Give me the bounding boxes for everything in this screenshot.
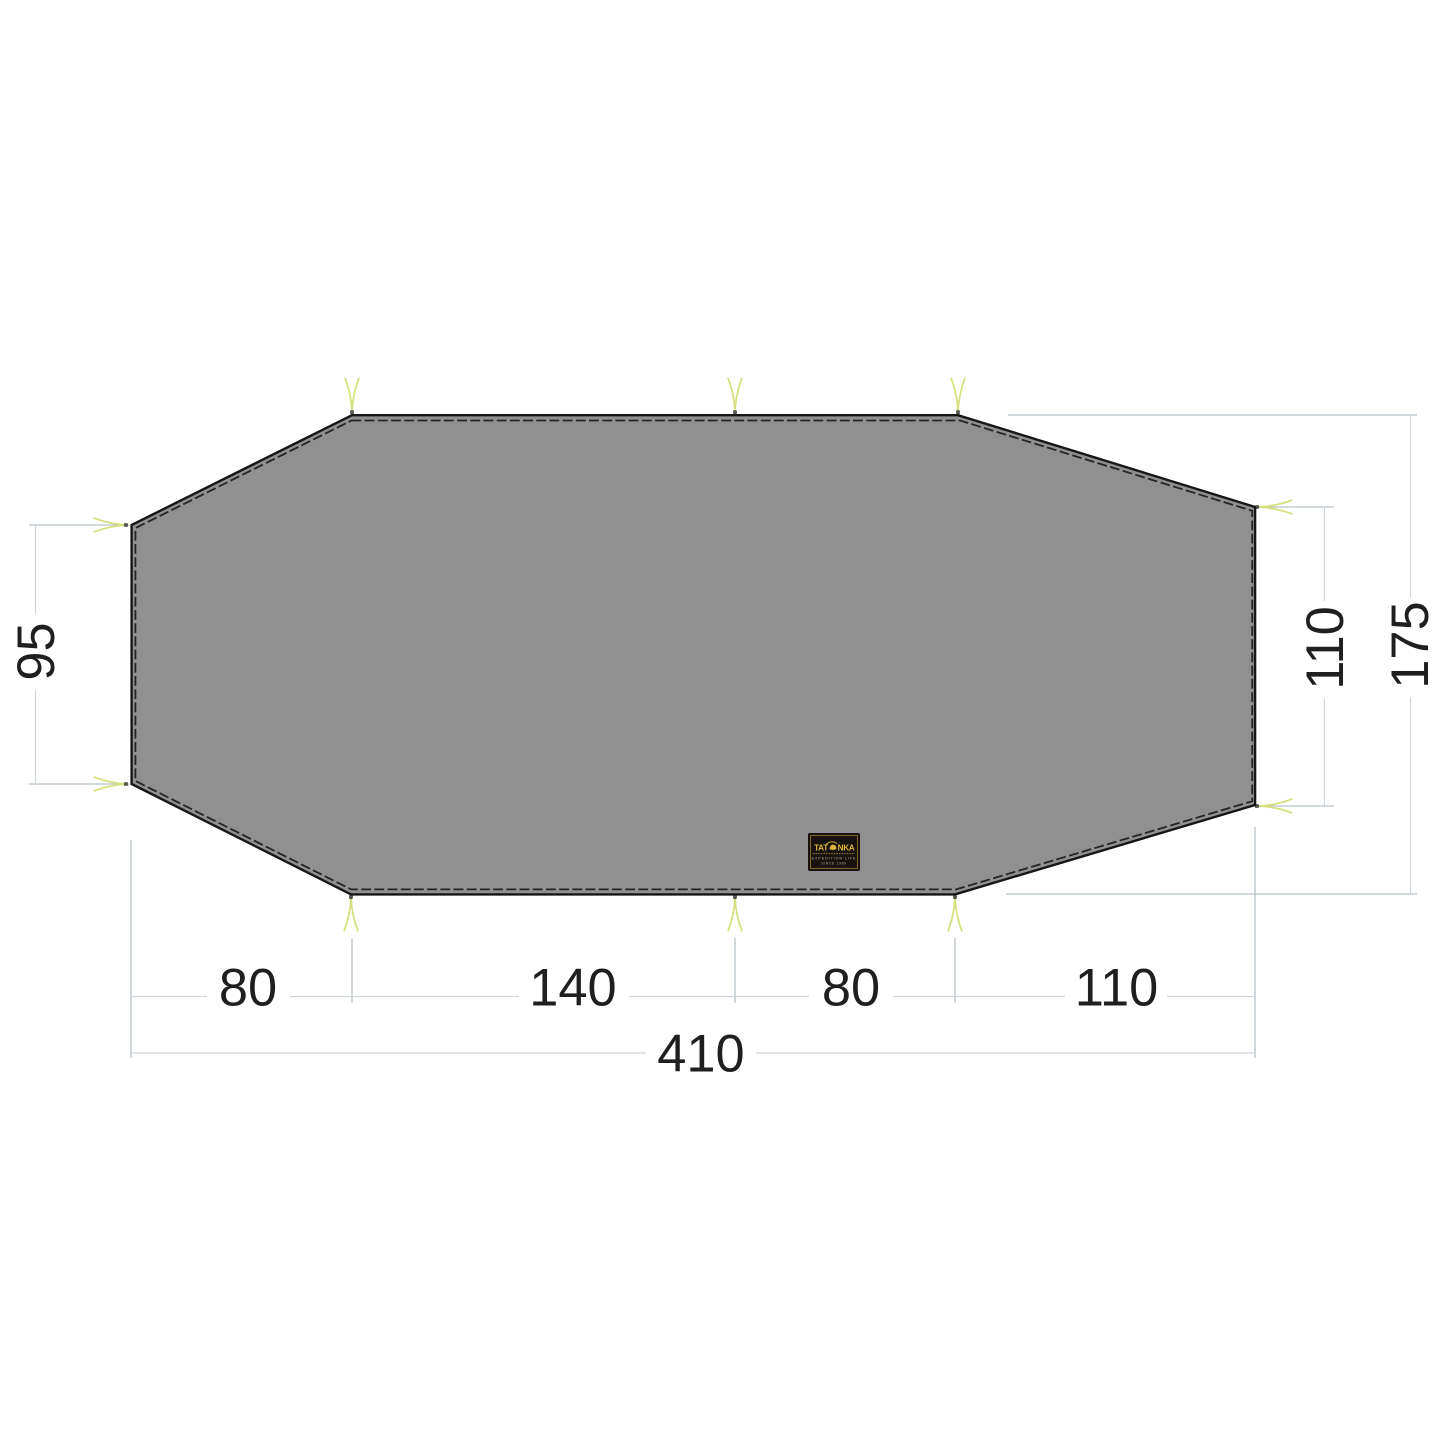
svg-text:80: 80 [219,960,277,1018]
svg-text:SINCE 1980: SINCE 1980 [821,861,846,865]
svg-text:110: 110 [1297,606,1355,690]
svg-text:NKA: NKA [838,844,855,853]
svg-text:175: 175 [1382,601,1440,688]
svg-text:EXPEDITION LIFE: EXPEDITION LIFE [812,857,857,861]
svg-text:410: 410 [657,1026,744,1084]
svg-text:80: 80 [822,960,880,1018]
svg-text:110: 110 [1075,960,1159,1018]
svg-text:95: 95 [8,622,66,680]
svg-text:140: 140 [529,960,616,1018]
